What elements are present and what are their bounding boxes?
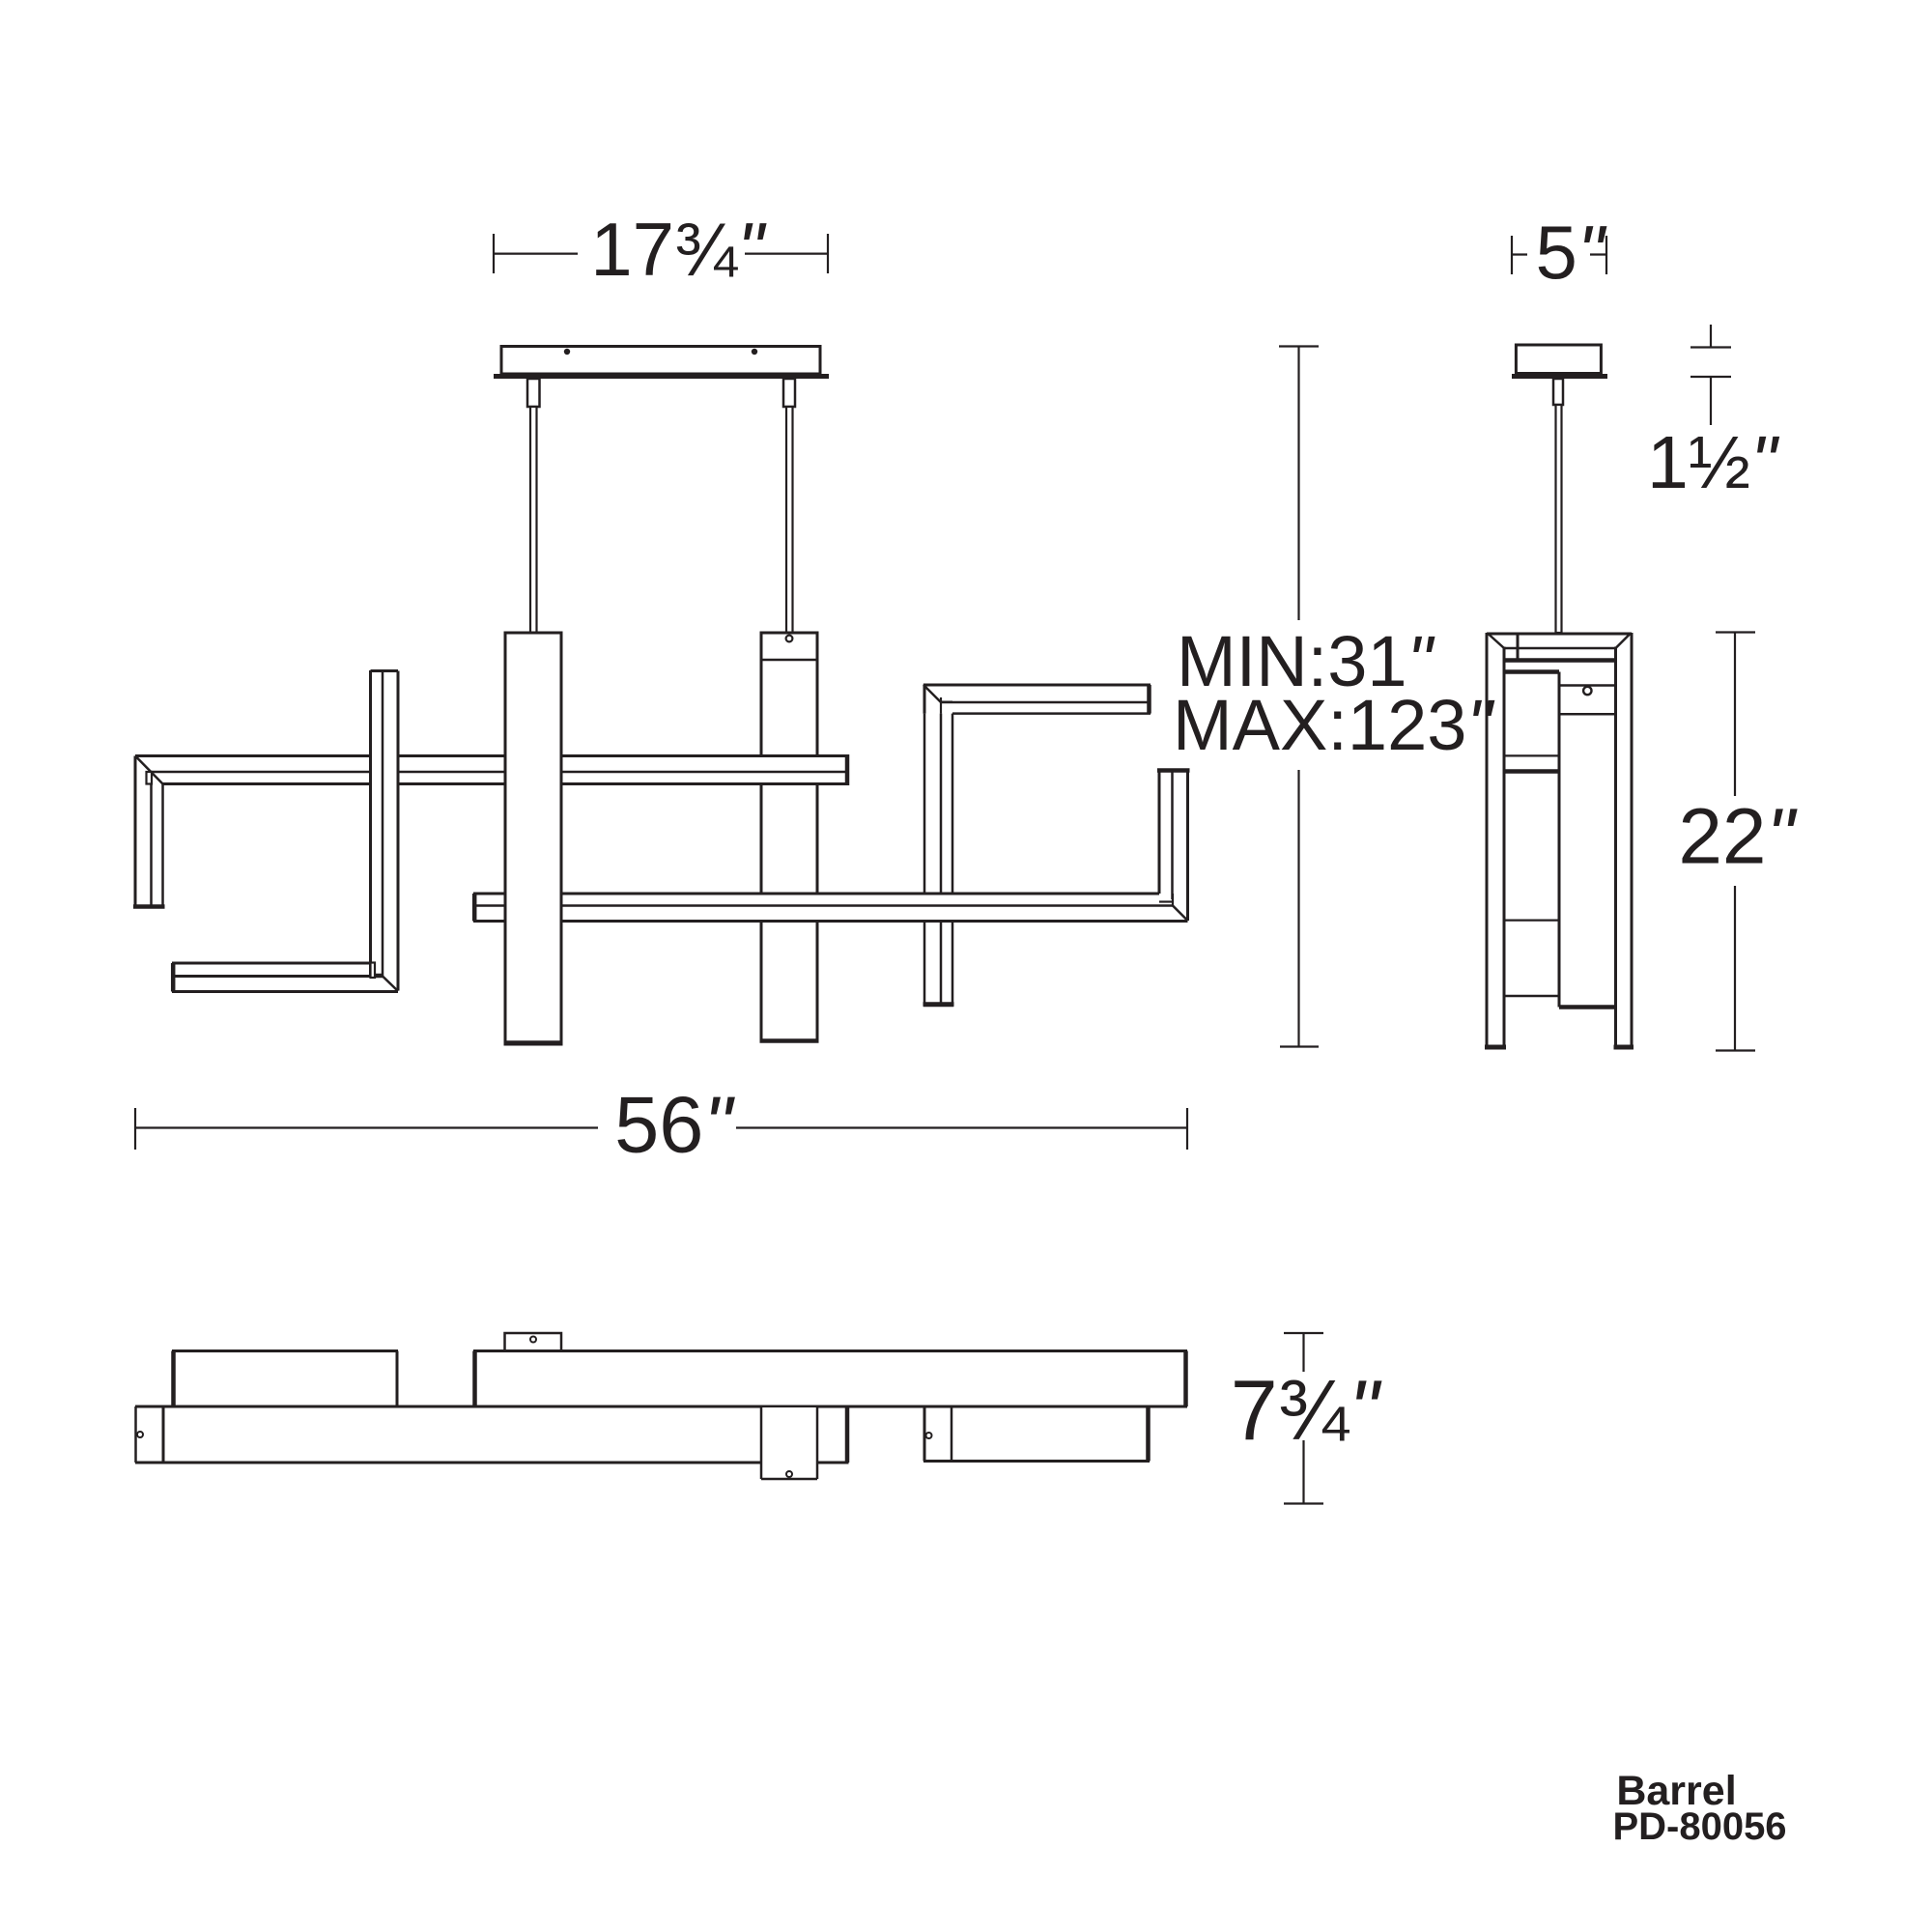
svg-text:1½": 1½": [1647, 421, 1780, 504]
svg-text:22": 22": [1678, 793, 1798, 881]
svg-text:56": 56": [614, 1080, 735, 1170]
svg-text:PD-80056: PD-80056: [1612, 1805, 1786, 1848]
svg-text:MAX:123": MAX:123": [1173, 685, 1495, 765]
svg-text:7¾": 7¾": [1231, 1362, 1382, 1458]
svg-text:5": 5": [1535, 210, 1606, 295]
svg-text:17¾": 17¾": [590, 207, 767, 292]
